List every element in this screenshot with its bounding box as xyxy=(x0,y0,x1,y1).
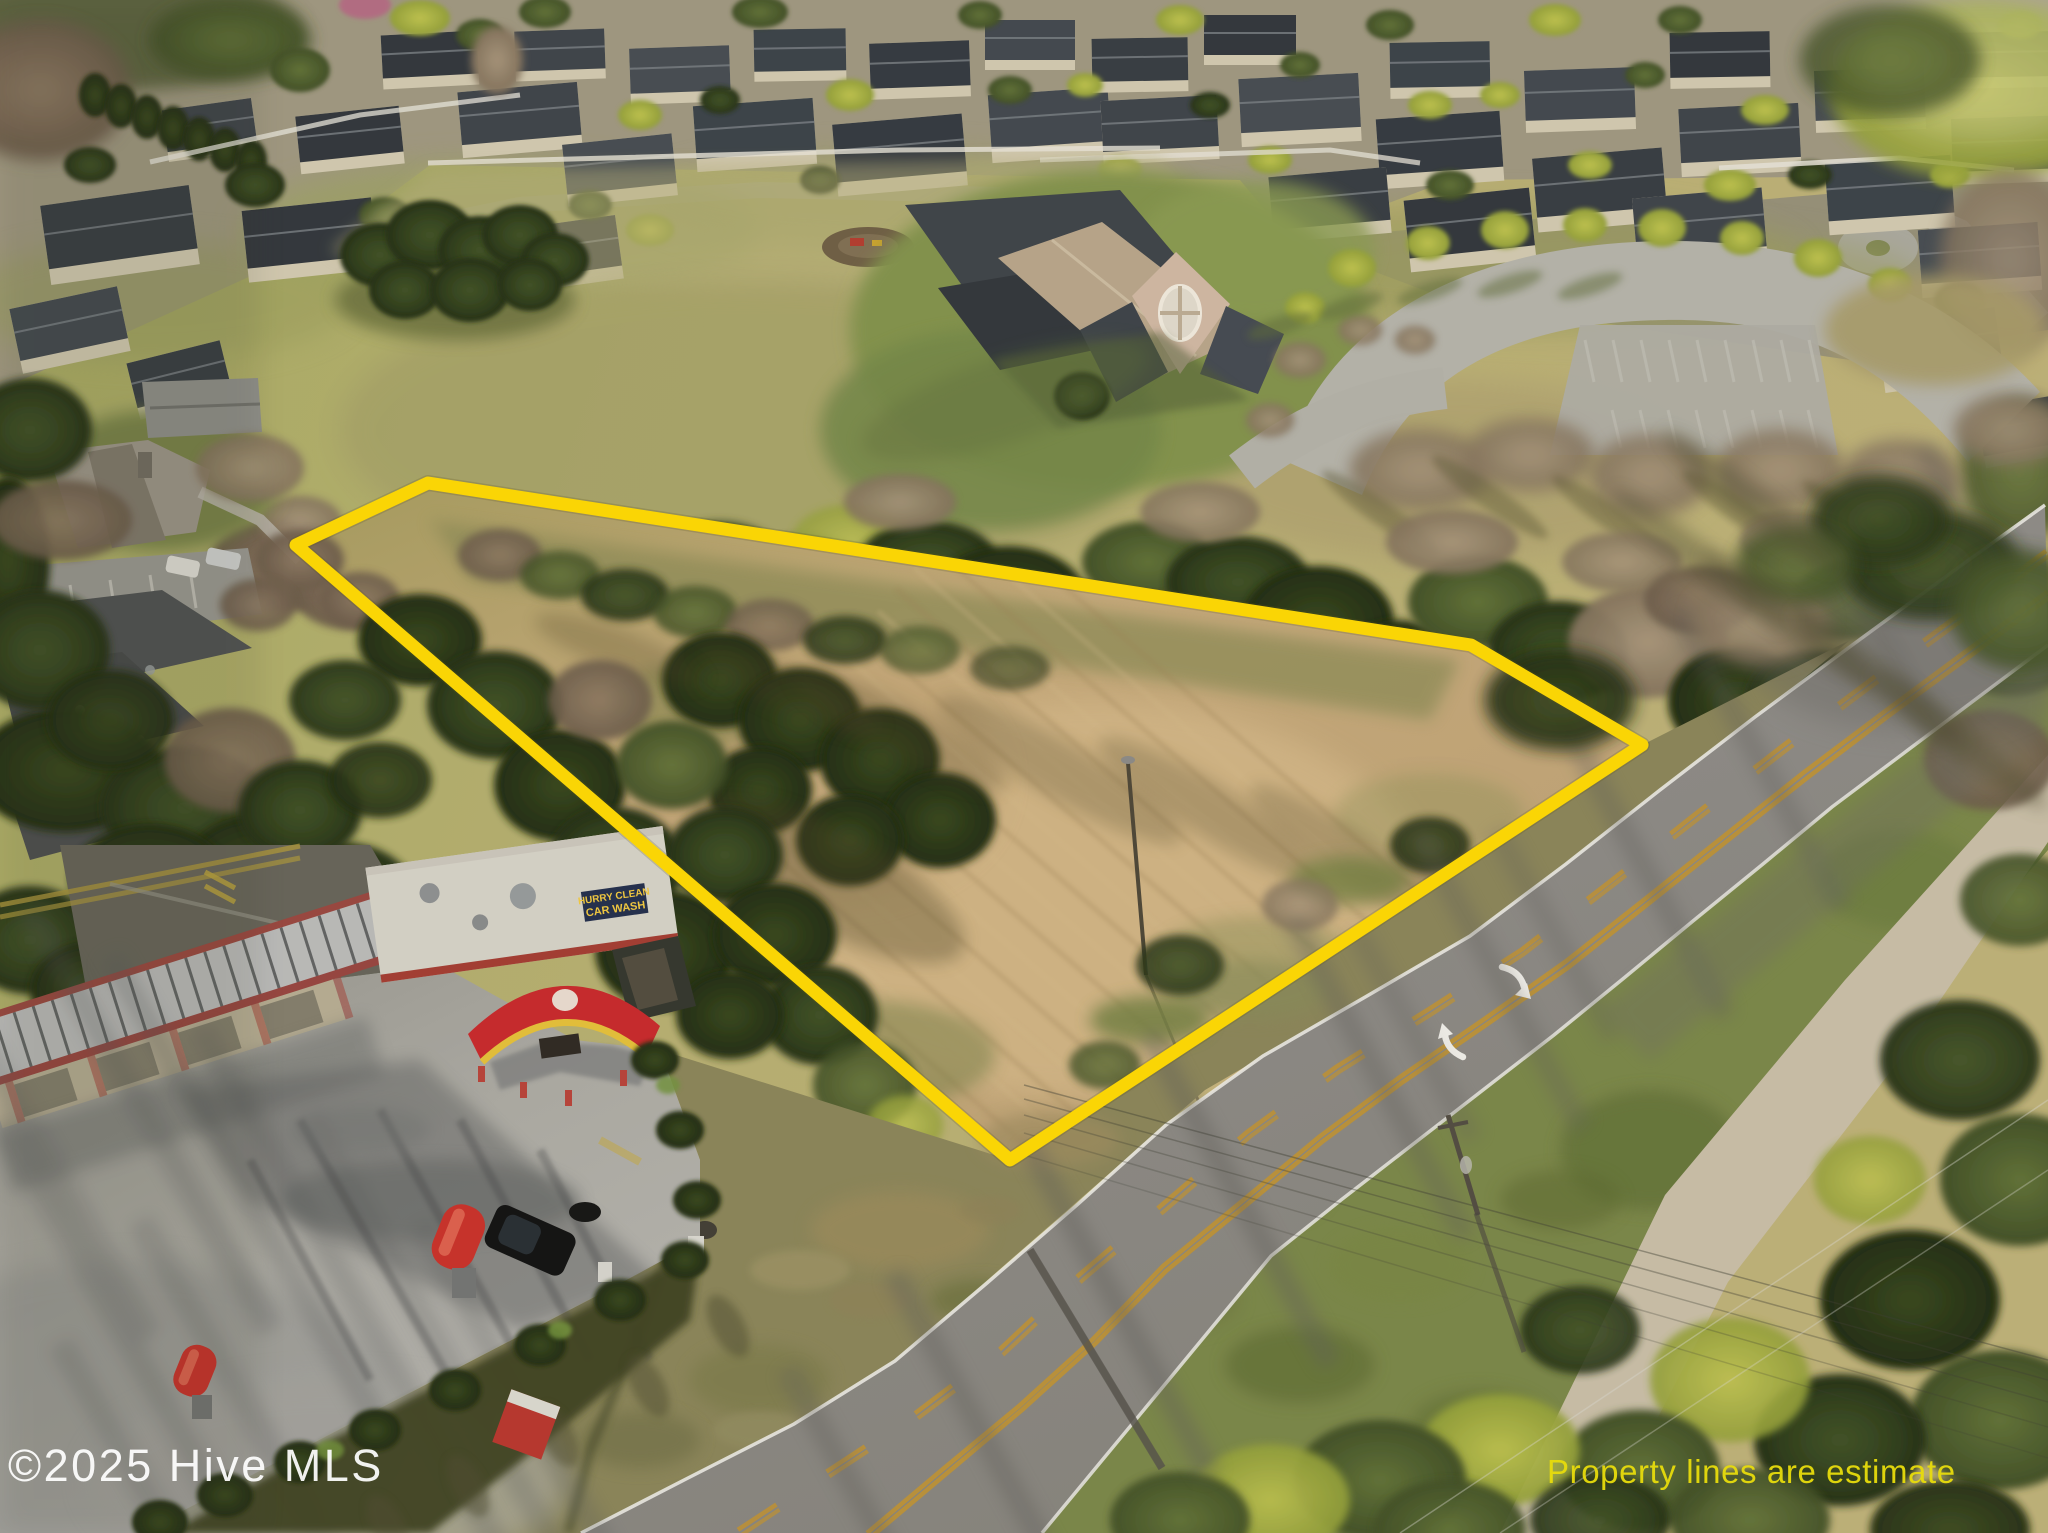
svg-text:©2025 Hive MLS: ©2025 Hive MLS xyxy=(8,1440,384,1491)
svg-text:Property lines are estimate: Property lines are estimate xyxy=(1547,1453,1956,1490)
